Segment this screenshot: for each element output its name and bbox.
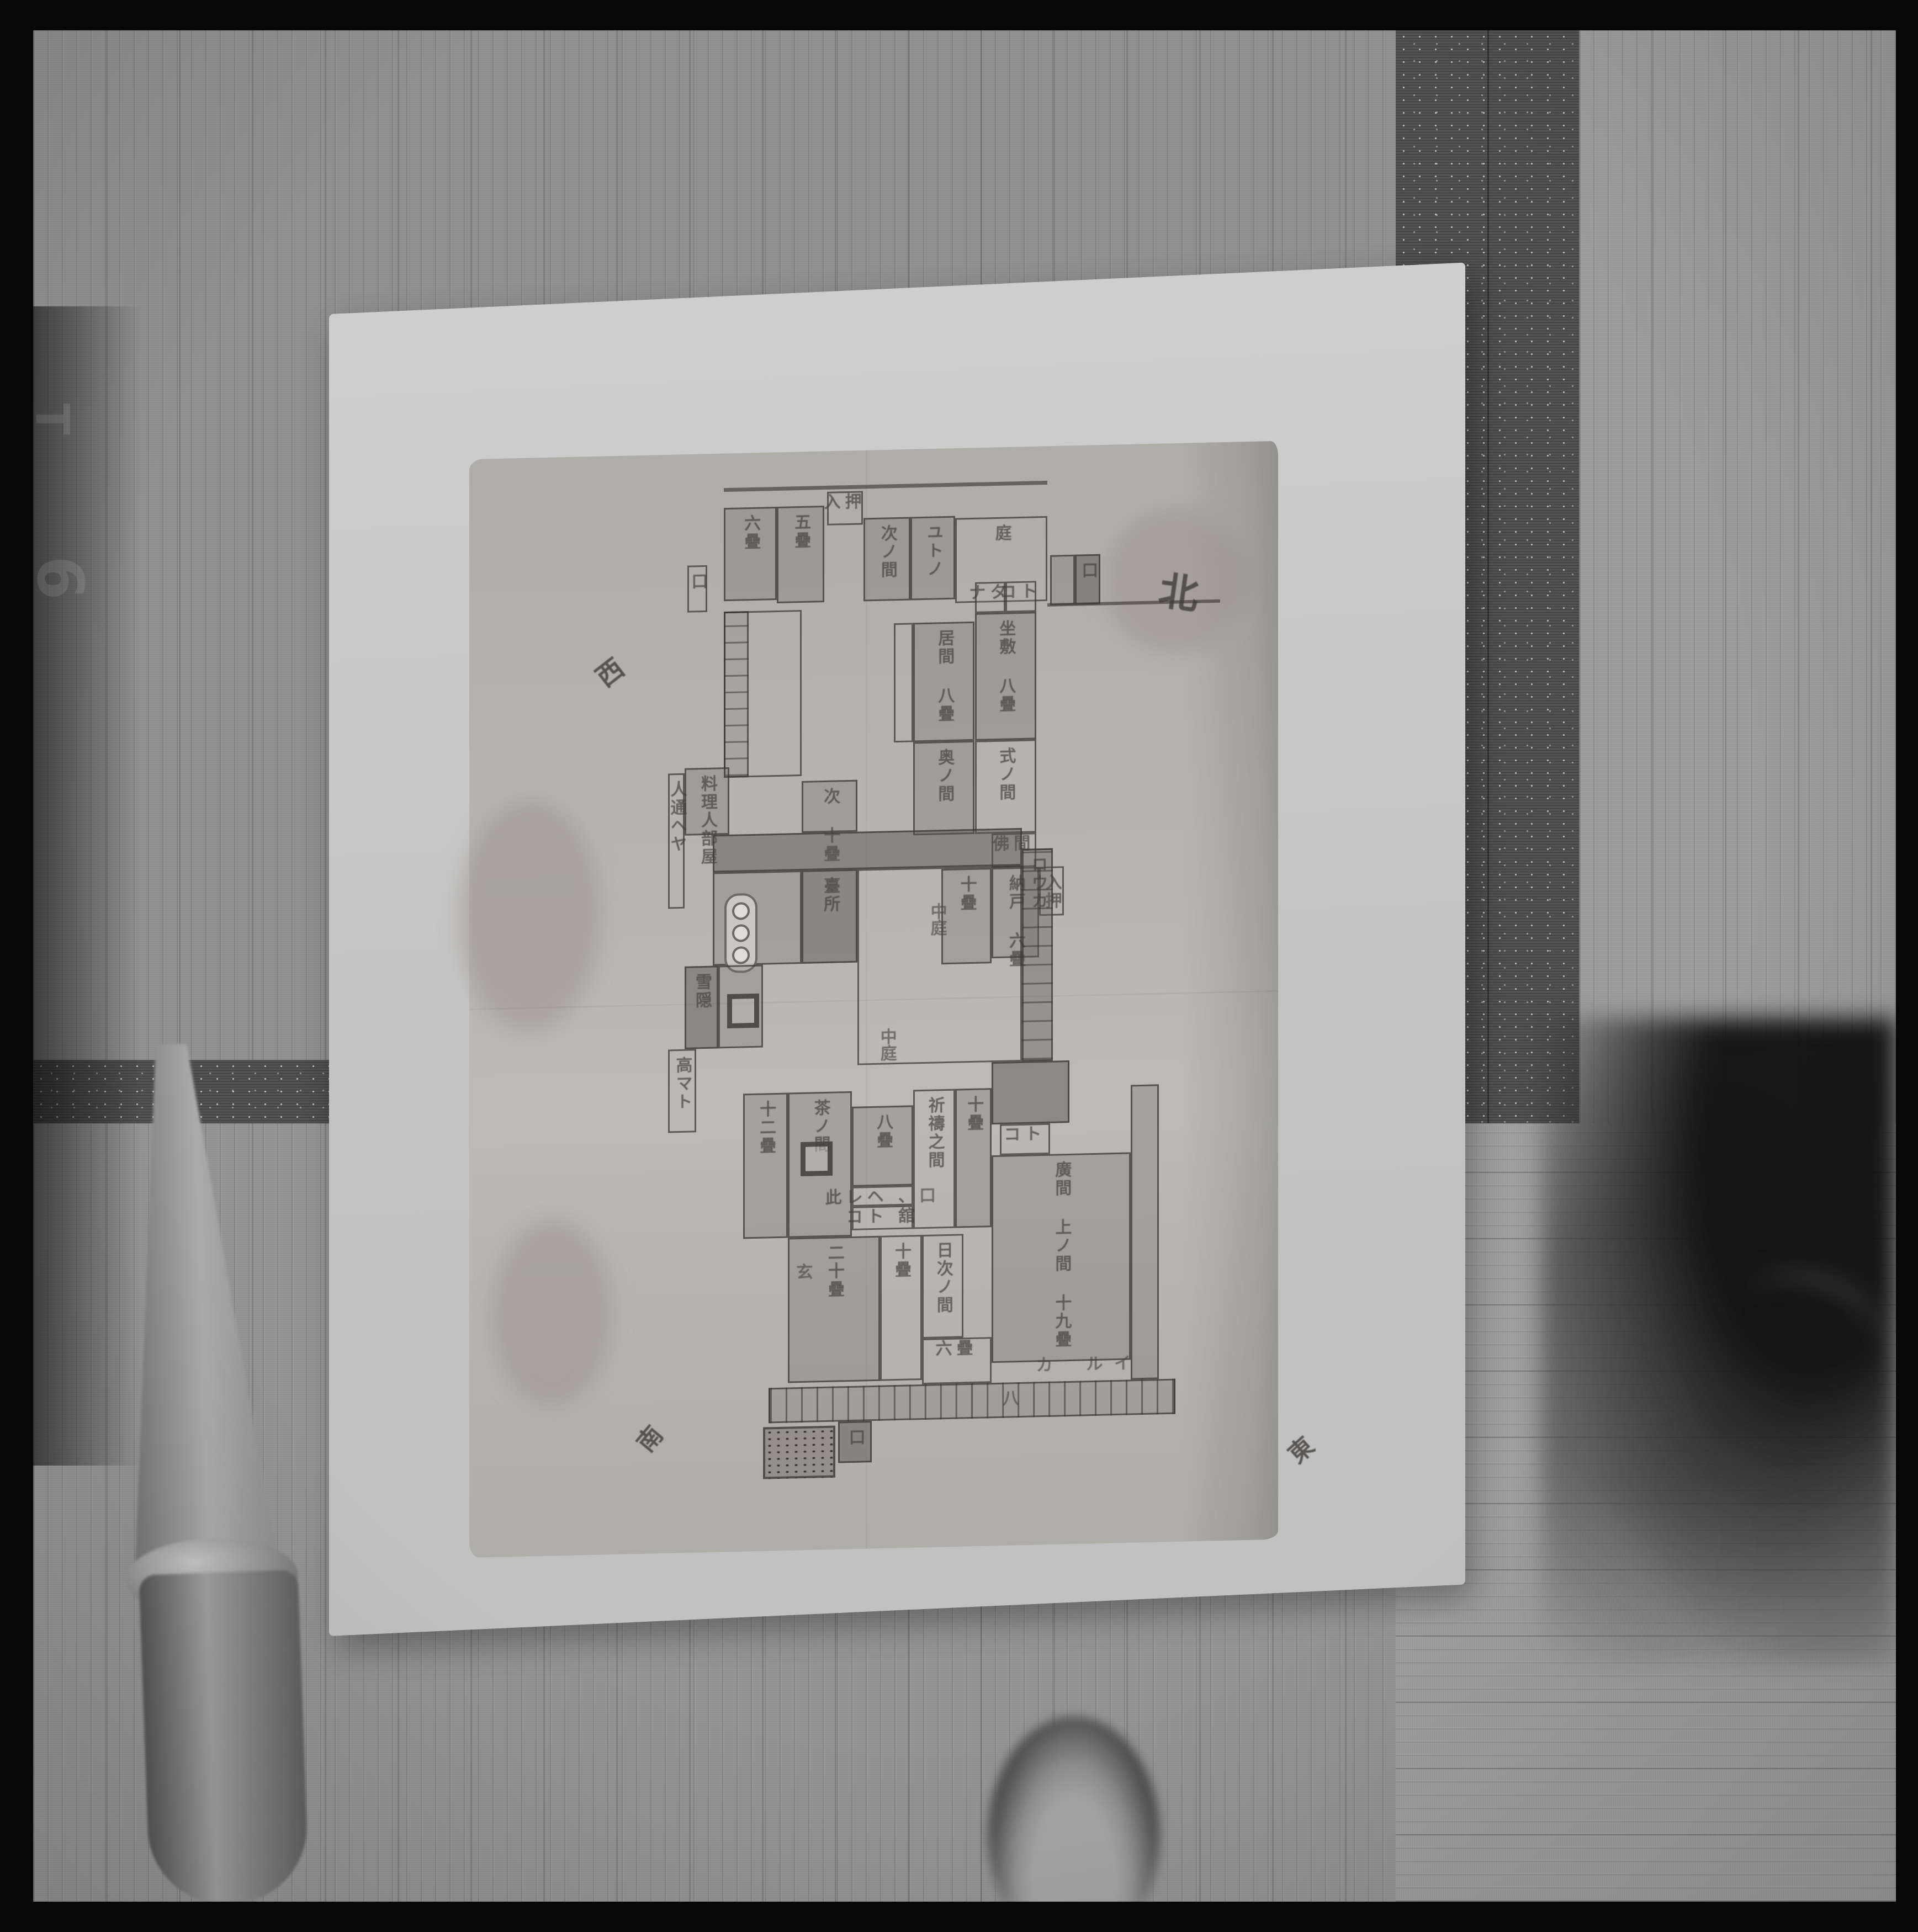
plan-room bbox=[769, 1379, 1175, 1424]
plan-room bbox=[718, 964, 763, 1048]
metal-pole bbox=[94, 1039, 345, 1902]
room-label: 雪隠 bbox=[693, 973, 710, 1048]
room-label: 人通ヘヤ bbox=[668, 781, 685, 907]
stove-icon bbox=[724, 893, 757, 973]
plan-room: 入押 bbox=[827, 491, 863, 526]
plan-room: 此レヘ 、口 bbox=[852, 1185, 913, 1206]
plan-room: 廣間 上ノ間 十九疊 bbox=[992, 1153, 1131, 1363]
photograph: T6 口六疊五疊入押次ノ間ユトノ庭口ナタコト坐敷 八疊居間 八疊奥ノ間式ノ間佛間… bbox=[0, 0, 1918, 1932]
room-label: 六疊 bbox=[742, 514, 759, 599]
plan-room: 祈禱之間 bbox=[913, 1089, 955, 1229]
plan-annotation: ル bbox=[1087, 1350, 1103, 1375]
room-label: 十疊 bbox=[892, 1243, 909, 1379]
plan-room: コト bbox=[1000, 1123, 1050, 1155]
plan-room: 五疊 bbox=[777, 506, 824, 603]
room-label: 十疊 bbox=[965, 1096, 982, 1227]
plan-room: 茶ノ間 bbox=[788, 1091, 852, 1238]
plan-room: 坐敷 八疊 bbox=[975, 612, 1036, 741]
room-label: 祈禱之間 bbox=[926, 1096, 943, 1227]
room-label: 口 bbox=[846, 1428, 863, 1461]
plan-annotation: 中庭 bbox=[875, 1028, 899, 1061]
plan-room: 口 bbox=[687, 565, 707, 612]
pole-shaft bbox=[94, 1039, 333, 1581]
room-label: ロウカ bbox=[1029, 856, 1046, 1060]
room-label: ユトノ bbox=[924, 523, 941, 598]
plan-room: 料理人部屋 bbox=[685, 767, 729, 836]
plan-annotation: 玄 bbox=[796, 1258, 813, 1283]
room-label: 廣間 上ノ間 十九疊 bbox=[1053, 1161, 1070, 1360]
plan-room: ユトノ bbox=[910, 516, 955, 600]
plan-room: 雪隠 bbox=[685, 965, 718, 1049]
room-label: 居間 八疊 bbox=[936, 629, 953, 740]
hearth-icon bbox=[801, 1142, 833, 1176]
plan-annotation: カ bbox=[1036, 1351, 1053, 1376]
plan-room: 人通ヘヤ bbox=[668, 773, 685, 909]
plan-room: 口 bbox=[1075, 554, 1100, 604]
room-label: 日次ノ間 bbox=[934, 1241, 951, 1337]
film-frame-right bbox=[1896, 0, 1918, 1932]
compass-北: 北 bbox=[1156, 558, 1203, 620]
plan-room: 六疊 bbox=[922, 1337, 992, 1384]
out-of-focus-object bbox=[1540, 1018, 1896, 1664]
photo-area: T6 口六疊五疊入押次ノ間ユトノ庭口ナタコト坐敷 八疊居間 八疊奥ノ間式ノ間佛間… bbox=[33, 30, 1896, 1902]
plan-room: 式ノ間 bbox=[975, 740, 1036, 835]
room-label: 入押 bbox=[824, 494, 866, 524]
water-stain bbox=[458, 799, 602, 1034]
room-label: コト bbox=[1000, 583, 1042, 611]
room-label: 八疊 bbox=[875, 1113, 892, 1184]
film-edge-mark-6: 6 bbox=[33, 556, 97, 600]
room-label: 二十疊 bbox=[825, 1244, 843, 1381]
plan-room: 八疊 bbox=[852, 1106, 913, 1187]
room-label: 口 bbox=[689, 572, 706, 611]
room-label: コト bbox=[1004, 1126, 1046, 1154]
plan-room bbox=[713, 828, 1022, 872]
tatami-mat-top-right bbox=[1579, 30, 1896, 1123]
film-frame-left bbox=[0, 0, 33, 1932]
room-label: 式ノ間 bbox=[997, 747, 1014, 832]
plan-room: 日次ノ間 bbox=[922, 1234, 964, 1339]
plan-annotation: 八 bbox=[1003, 1384, 1019, 1409]
plan-room bbox=[894, 623, 913, 742]
plan-room: 居間 八疊 bbox=[913, 622, 974, 742]
plan-room: 次ノ間 bbox=[863, 517, 911, 601]
plan-room: 口 bbox=[838, 1421, 872, 1463]
room-label: 次 十疊 bbox=[822, 787, 839, 831]
plan-room: コト 舘 bbox=[852, 1205, 913, 1230]
room-label: 坐敷 八疊 bbox=[997, 619, 1014, 739]
floor-plan: 口六疊五疊入押次ノ間ユトノ庭口ナタコト坐敷 八疊居間 八疊奥ノ間式ノ間佛間十疊納… bbox=[668, 460, 1226, 1511]
plan-room: 六疊 bbox=[724, 507, 777, 601]
room-label: 六疊 bbox=[936, 1340, 978, 1382]
plan-room: 臺所 bbox=[802, 869, 857, 963]
plan-room: ロウカ bbox=[1022, 848, 1053, 1061]
plan-room: 高マト bbox=[668, 1049, 696, 1133]
plan-room: 奥ノ間 bbox=[913, 741, 974, 836]
plan-room bbox=[713, 871, 802, 966]
plan-room bbox=[1050, 555, 1075, 605]
plan-annotation: イ bbox=[1114, 1350, 1131, 1374]
plan-room: 十二疊 bbox=[743, 1093, 788, 1239]
plan-annotation: 中庭 bbox=[925, 903, 949, 936]
room-label: 五疊 bbox=[792, 513, 809, 601]
plan-room: 十疊 bbox=[955, 1088, 992, 1228]
hearth-icon bbox=[727, 994, 759, 1028]
plan-room bbox=[724, 611, 749, 778]
room-label: 十二疊 bbox=[757, 1100, 774, 1237]
plan-room bbox=[992, 1060, 1069, 1124]
plan-room bbox=[763, 1426, 835, 1479]
plan-room bbox=[724, 481, 1047, 492]
film-edge-mark-T: T bbox=[33, 403, 80, 434]
room-label: 次ノ間 bbox=[878, 524, 896, 599]
plan-room: 次 十疊 bbox=[802, 780, 857, 833]
room-label: コト 舘 bbox=[846, 1208, 919, 1229]
plan-room: コト bbox=[1005, 581, 1036, 613]
film-frame-top bbox=[0, 0, 1918, 30]
room-label: 料理人部屋 bbox=[698, 774, 716, 834]
plan-room: 十疊 bbox=[880, 1235, 922, 1381]
room-label: 臺所 bbox=[822, 877, 839, 962]
film-frame-bottom bbox=[0, 1902, 1918, 1932]
plan-room bbox=[1131, 1084, 1159, 1379]
pole-barrel bbox=[139, 1570, 310, 1902]
room-label: 高マト bbox=[674, 1057, 691, 1131]
room-label: 口 bbox=[1079, 561, 1096, 603]
water-stain bbox=[491, 1218, 613, 1408]
room-label: 奥ノ間 bbox=[936, 749, 953, 834]
highlight-arc bbox=[1707, 1249, 1896, 1432]
